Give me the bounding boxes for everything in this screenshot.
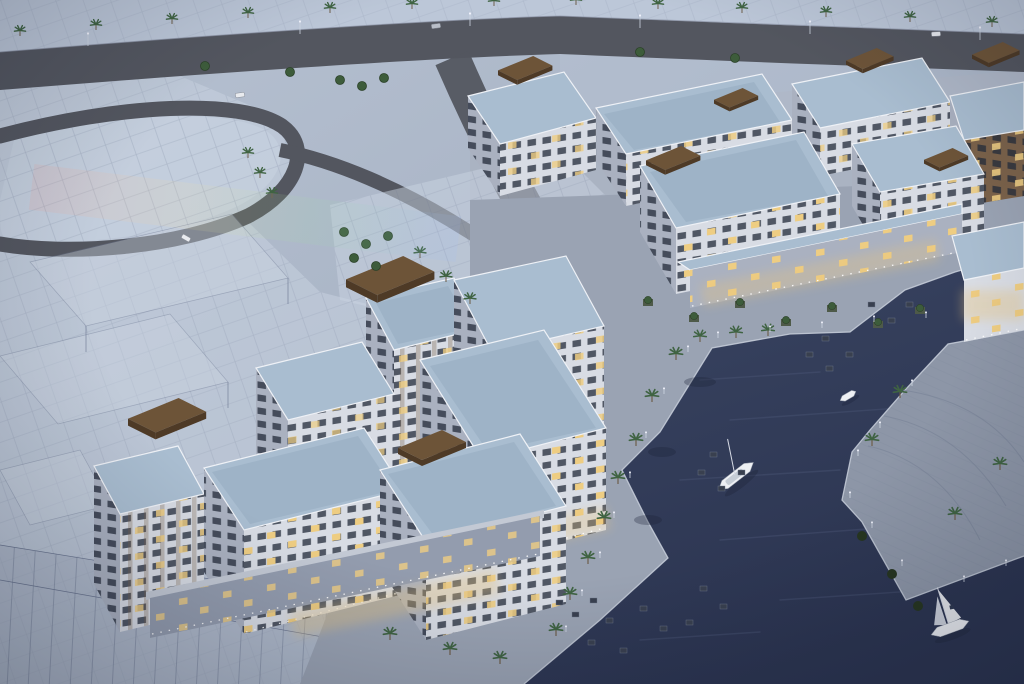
aerial-render — [0, 0, 1024, 684]
scene-canvas — [0, 0, 1024, 684]
vignette — [0, 0, 1024, 684]
